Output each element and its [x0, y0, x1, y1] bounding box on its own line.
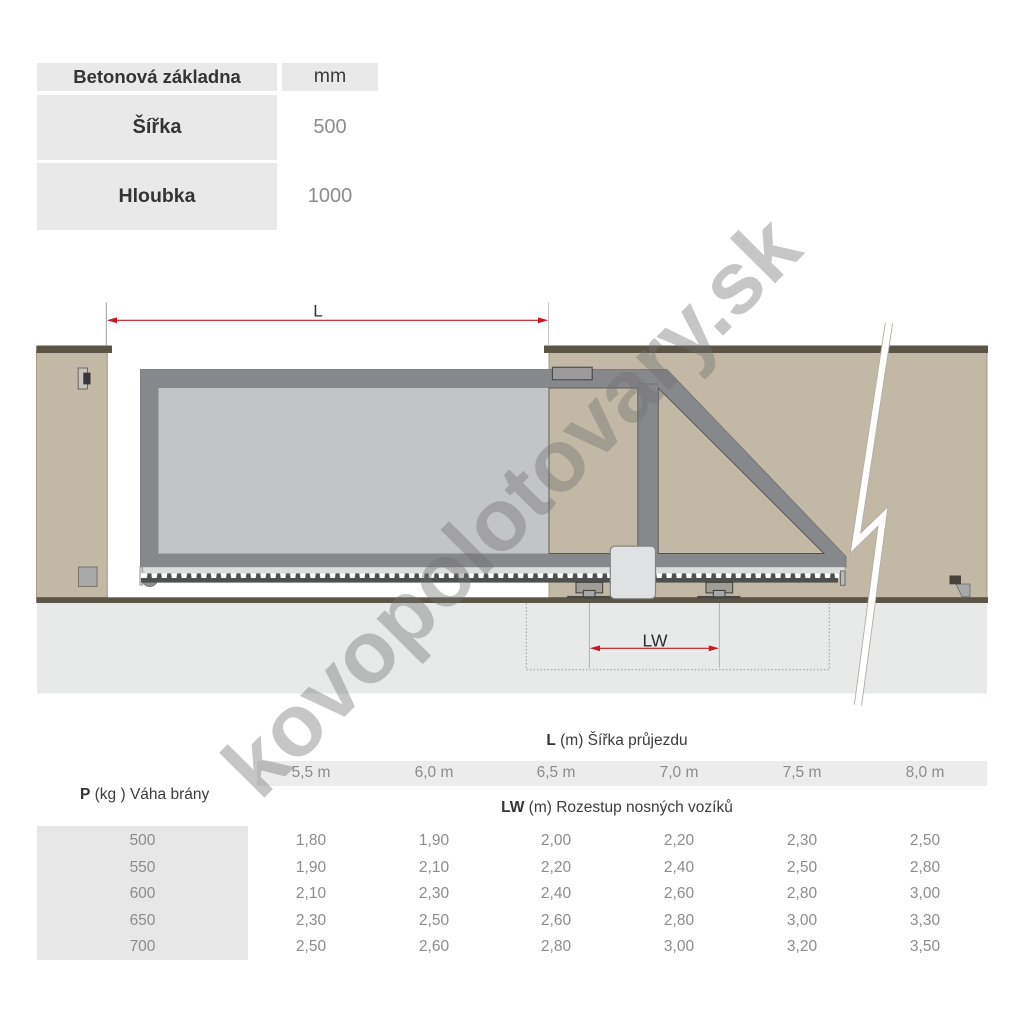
svg-text:L: L [313, 302, 322, 321]
svg-text:LW: LW [643, 631, 668, 651]
svg-text:kovopolotovary.sk: kovopolotovary.sk [203, 196, 819, 816]
